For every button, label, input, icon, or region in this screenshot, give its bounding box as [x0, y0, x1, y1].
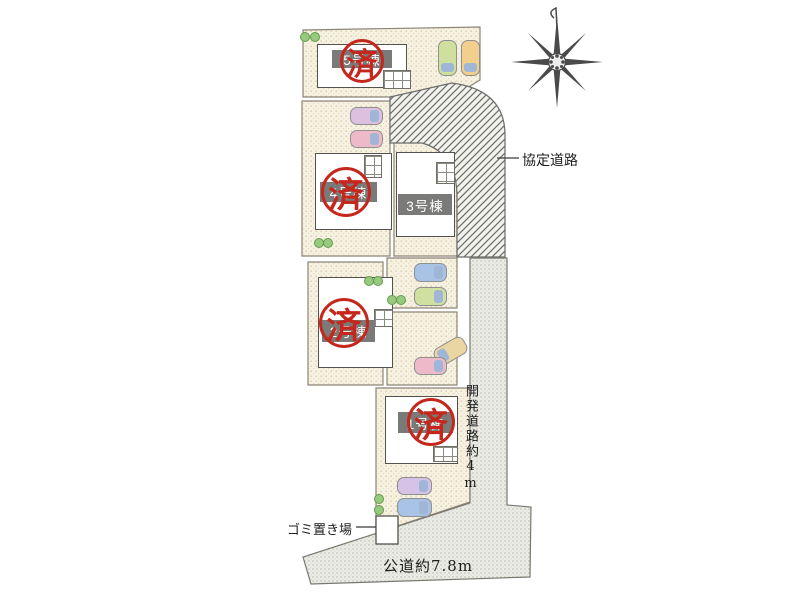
car-windshield: [434, 290, 443, 303]
car: [414, 287, 447, 306]
car: [461, 40, 480, 76]
car: [414, 263, 447, 282]
building-2-porch-grid: [374, 309, 393, 327]
development-road-label: 開発道路約4m: [461, 384, 480, 493]
building-3-label: 3号棟: [398, 194, 452, 215]
bush-icon: [374, 505, 384, 515]
sold-stamp-5: 済: [340, 39, 384, 83]
building-3-porch-grid: [436, 162, 455, 184]
building-3: 3号棟: [396, 152, 455, 237]
sold-stamp-4: 済: [321, 167, 371, 217]
car-windshield: [370, 133, 379, 145]
car: [438, 40, 457, 76]
garbage-station-box: [376, 516, 398, 544]
car-windshield: [419, 480, 428, 492]
agreement-road-label: 協定道路: [522, 150, 578, 170]
car: [397, 477, 432, 495]
bush-icon: [323, 238, 333, 248]
garbage-station-label: ゴミ置き場: [287, 519, 352, 538]
site-plan: 5号棟 4号棟 3号棟 2号棟 1号棟 済 済 済 済 協定道路 開発道路約4m…: [0, 0, 800, 600]
car: [397, 498, 432, 517]
bush-icon: [374, 494, 384, 504]
sold-stamp-2: 済: [319, 298, 369, 348]
bush-icon: [310, 32, 320, 42]
building-4-porch-grid: [364, 155, 382, 178]
compass-rose-icon: [511, 8, 603, 108]
car-windshield: [370, 110, 379, 122]
building-1-porch-grid: [433, 446, 458, 462]
car-windshield: [464, 63, 477, 72]
car: [414, 357, 447, 375]
car-windshield: [434, 266, 443, 279]
bush-icon: [373, 276, 383, 286]
car-windshield: [419, 501, 428, 514]
sold-stamp-1: 済: [407, 398, 455, 446]
bush-icon: [300, 32, 310, 42]
car-windshield: [434, 360, 443, 372]
car-windshield: [441, 63, 454, 72]
car: [350, 130, 383, 148]
public-road-label: 公道約7.8m: [383, 555, 473, 576]
bush-icon: [396, 295, 406, 305]
building-5-porch-grid: [383, 70, 411, 89]
car: [350, 107, 383, 125]
